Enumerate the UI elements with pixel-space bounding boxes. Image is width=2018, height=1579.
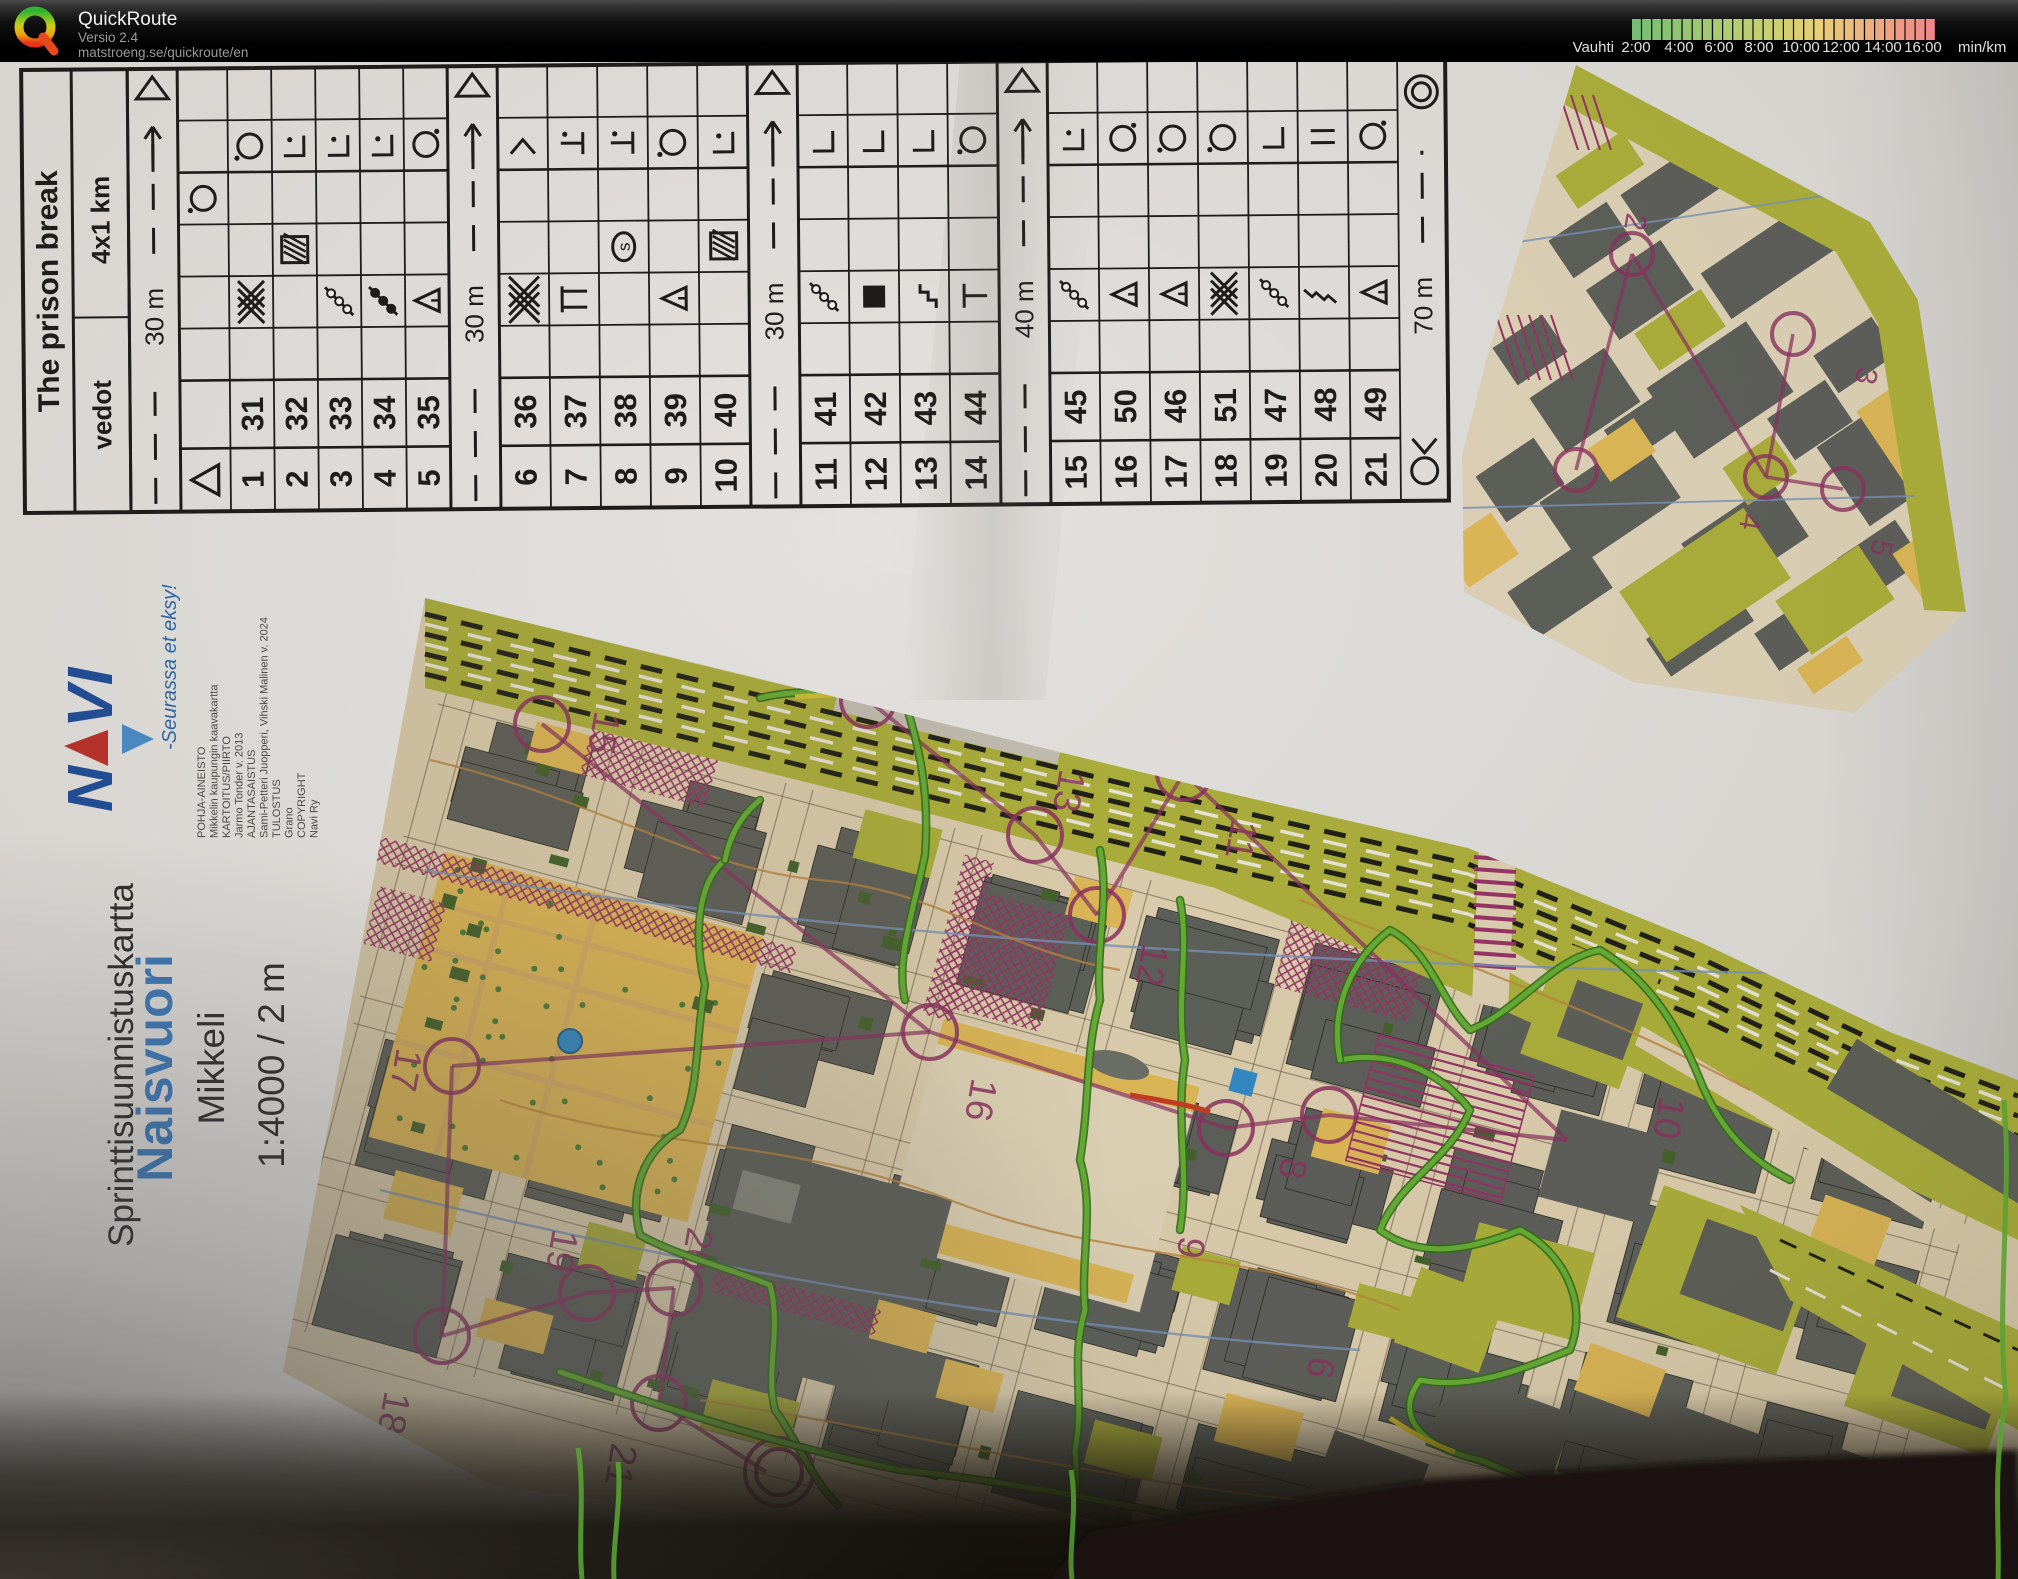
svg-text:8:00: 8:00 xyxy=(1744,39,1773,56)
svg-text:2:00: 2:00 xyxy=(1621,39,1650,56)
svg-text:4:00: 4:00 xyxy=(1664,39,1693,56)
svg-text:min/km: min/km xyxy=(1958,39,2006,56)
svg-text:16:00: 16:00 xyxy=(1904,39,1942,56)
svg-text:Vauhti: Vauhti xyxy=(1573,39,1614,56)
svg-text:matstroeng.se/quickroute/en: matstroeng.se/quickroute/en xyxy=(78,45,248,60)
svg-text:6:00: 6:00 xyxy=(1704,39,1733,56)
svg-text:Versio 2.4: Versio 2.4 xyxy=(78,30,139,45)
svg-text:12:00: 12:00 xyxy=(1822,39,1860,56)
svg-text:QuickRoute: QuickRoute xyxy=(78,9,177,30)
svg-text:10:00: 10:00 xyxy=(1782,39,1820,56)
svg-text:14:00: 14:00 xyxy=(1864,39,1902,56)
